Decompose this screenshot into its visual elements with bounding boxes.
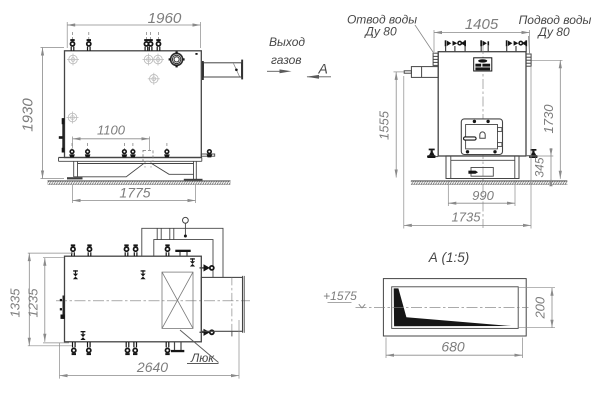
svg-text:Люк: Люк: [190, 351, 215, 365]
svg-text:2640: 2640: [136, 359, 168, 375]
svg-text:200: 200: [533, 296, 548, 319]
svg-text:1960: 1960: [148, 10, 182, 27]
svg-text:1335: 1335: [8, 288, 23, 318]
svg-text:680: 680: [441, 339, 465, 355]
svg-text:1235: 1235: [25, 288, 40, 318]
svg-text:газов: газов: [271, 53, 302, 67]
svg-text:А: А: [318, 60, 328, 76]
svg-text:345: 345: [533, 157, 547, 177]
svg-text:1405: 1405: [465, 16, 499, 33]
svg-text:Ду 80: Ду 80: [363, 25, 397, 39]
svg-text:+1575: +1575: [323, 289, 357, 303]
svg-text:1930: 1930: [20, 98, 37, 132]
svg-text:1100: 1100: [97, 123, 126, 138]
svg-text:Ду 80: Ду 80: [536, 25, 570, 39]
svg-text:1555: 1555: [377, 110, 392, 140]
svg-text:А (1:5): А (1:5): [428, 250, 470, 265]
svg-text:990: 990: [472, 188, 494, 203]
svg-text:1735: 1735: [452, 210, 482, 225]
svg-text:Выход: Выход: [269, 35, 305, 49]
svg-text:1775: 1775: [119, 185, 150, 201]
svg-text:1730: 1730: [541, 104, 556, 134]
